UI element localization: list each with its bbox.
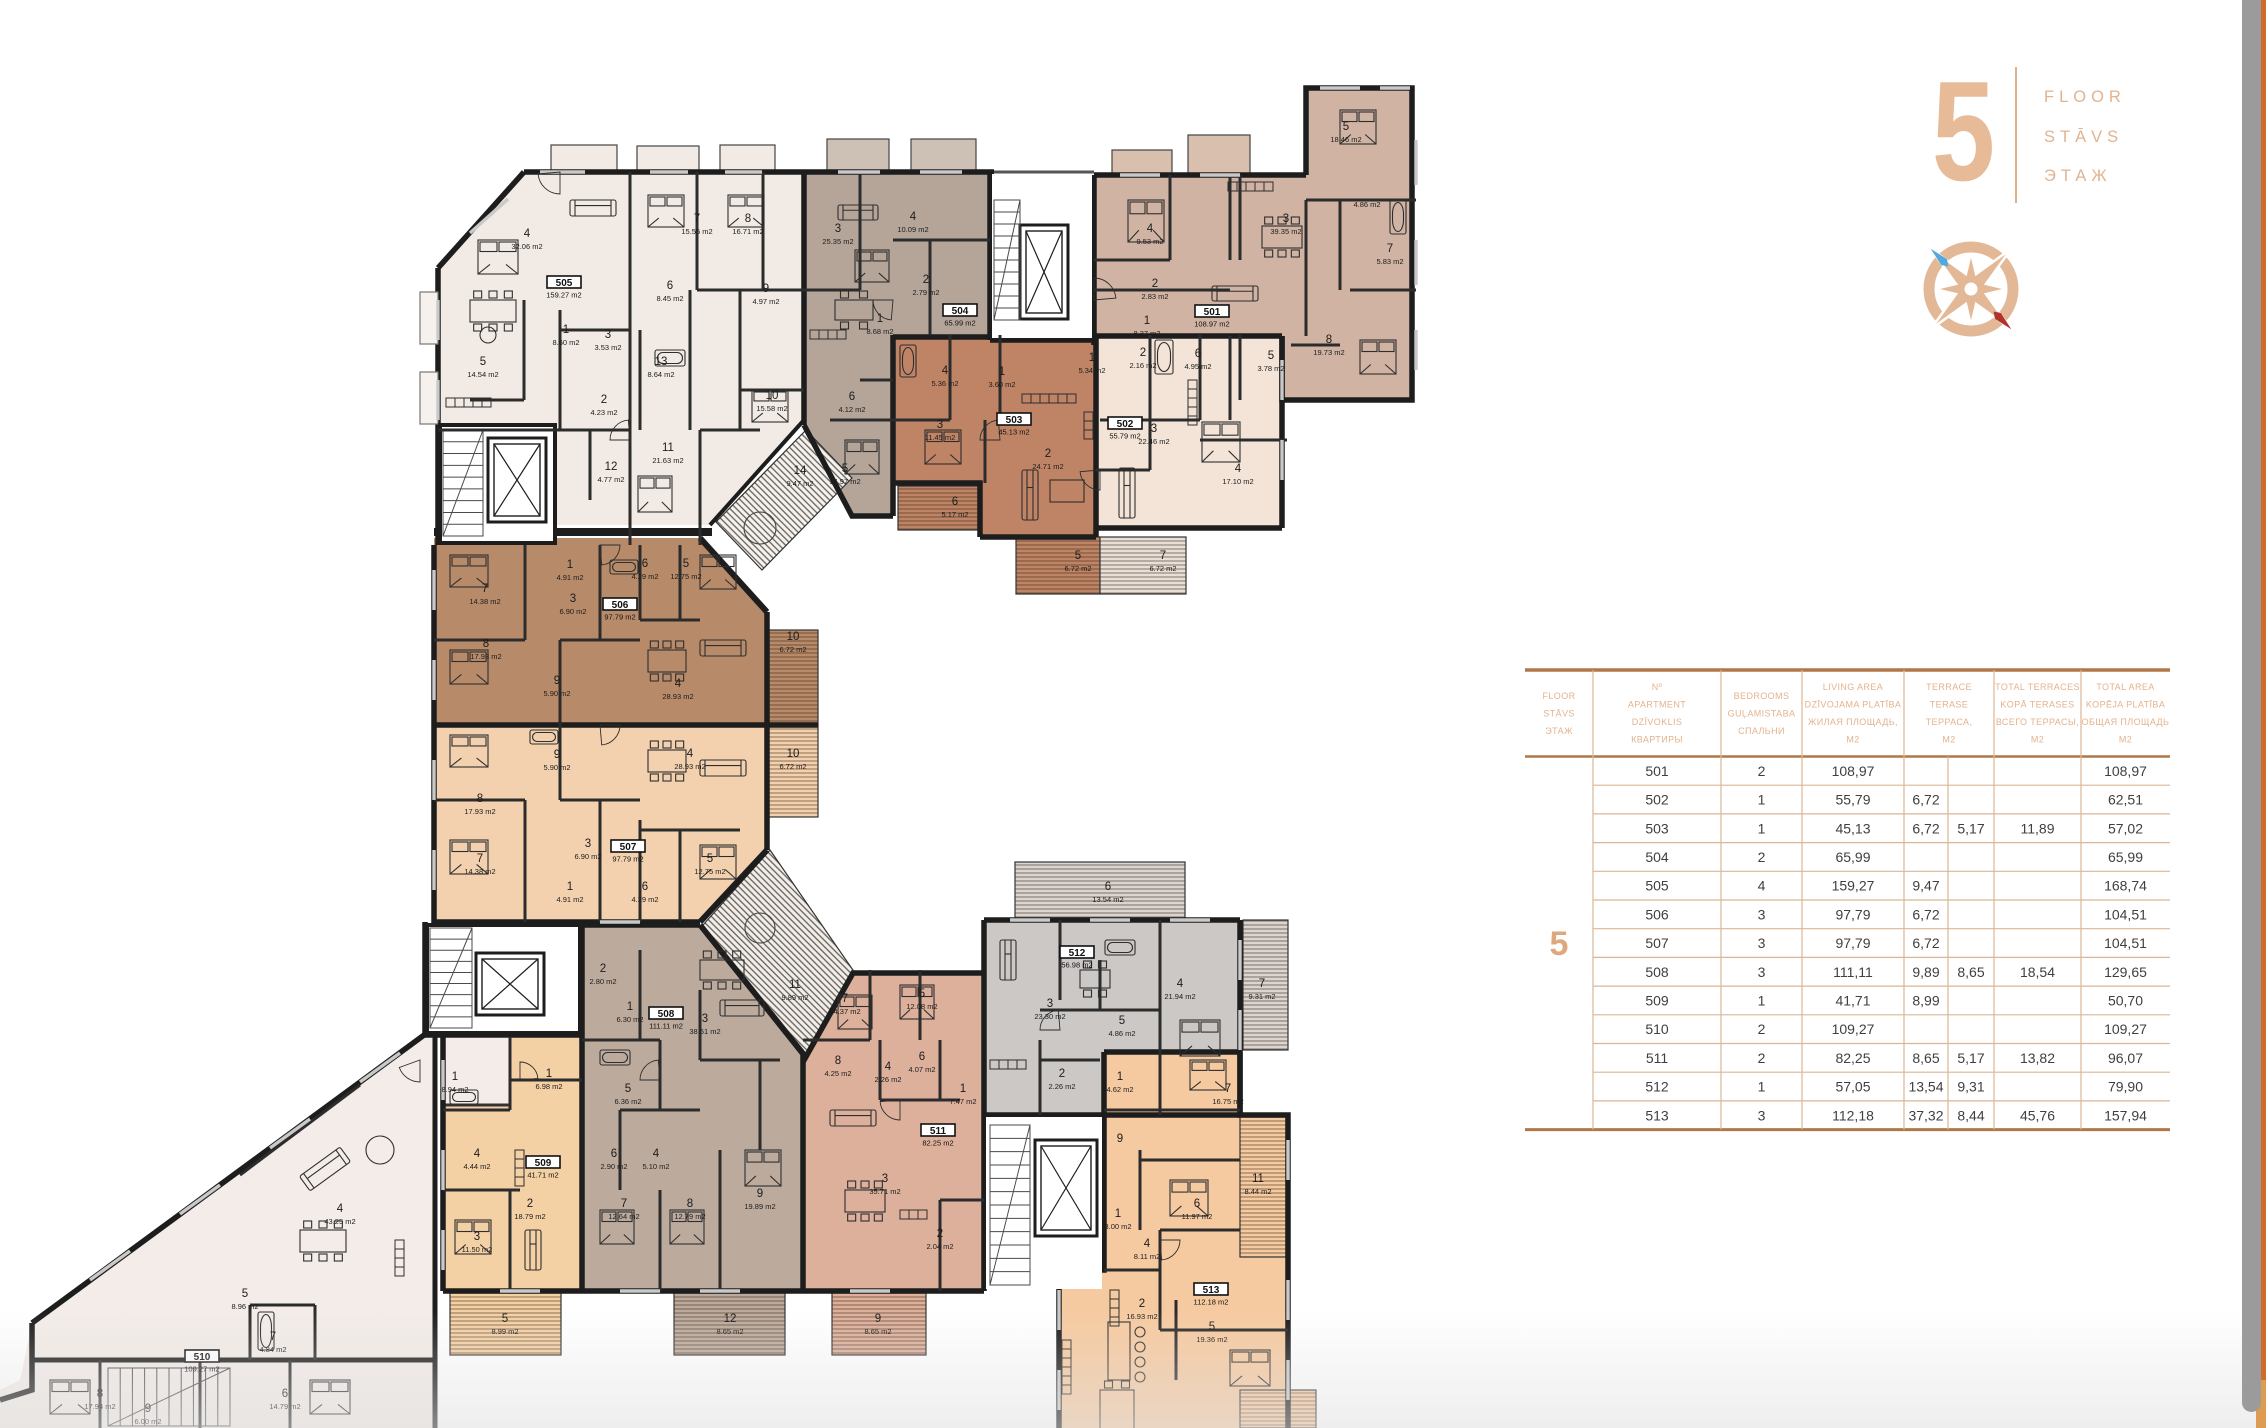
svg-text:TOTAL TERRACES: TOTAL TERRACES <box>1995 682 2080 692</box>
svg-text:6,72: 6,72 <box>1912 792 1939 808</box>
svg-text:509: 509 <box>1645 992 1669 1008</box>
svg-text:2: 2 <box>1758 1021 1766 1037</box>
svg-text:4: 4 <box>1758 878 1766 894</box>
svg-text:5: 5 <box>1550 925 1569 963</box>
svg-text:1: 1 <box>1758 992 1766 1008</box>
svg-text:79,90: 79,90 <box>2108 1079 2143 1095</box>
svg-text:ВСЕГО ТЕРРАСЫ,: ВСЕГО ТЕРРАСЫ, <box>1996 717 2079 727</box>
svg-text:DZĪVOKLIS: DZĪVOKLIS <box>1632 717 1683 727</box>
svg-text:13,82: 13,82 <box>2020 1050 2055 1066</box>
svg-text:82,25: 82,25 <box>1835 1050 1870 1066</box>
svg-text:6,72: 6,72 <box>1912 935 1939 951</box>
svg-text:109,27: 109,27 <box>1832 1021 1875 1037</box>
svg-text:BEDROOMS: BEDROOMS <box>1734 691 1790 701</box>
svg-text:LIVING AREA: LIVING AREA <box>1823 682 1883 692</box>
svg-text:6,72: 6,72 <box>1912 906 1939 922</box>
svg-text:ТЕРРАСА,: ТЕРРАСА, <box>1926 717 1973 727</box>
svg-text:512: 512 <box>1645 1079 1669 1095</box>
svg-text:45,13: 45,13 <box>1835 820 1870 836</box>
svg-text:129,65: 129,65 <box>2104 964 2147 980</box>
svg-text:506: 506 <box>1645 906 1669 922</box>
svg-text:M2: M2 <box>1942 735 1955 745</box>
svg-text:КВАРТИРЫ: КВАРТИРЫ <box>1631 735 1683 745</box>
svg-text:8,99: 8,99 <box>1912 992 1939 1008</box>
svg-text:508: 508 <box>1645 964 1669 980</box>
svg-text:96,07: 96,07 <box>2108 1050 2143 1066</box>
svg-text:11,89: 11,89 <box>2021 820 2055 836</box>
svg-text:168,74: 168,74 <box>2104 878 2147 894</box>
svg-text:APARTMENT: APARTMENT <box>1628 700 1686 710</box>
svg-text:57,05: 57,05 <box>1835 1079 1870 1095</box>
svg-text:510: 510 <box>1645 1021 1669 1037</box>
svg-text:13,54: 13,54 <box>1908 1079 1943 1095</box>
svg-text:5,17: 5,17 <box>1957 820 1984 836</box>
svg-text:45,76: 45,76 <box>2020 1107 2055 1123</box>
svg-text:1: 1 <box>1758 1079 1766 1095</box>
svg-text:M2: M2 <box>1846 735 1859 745</box>
svg-text:157,94: 157,94 <box>2104 1107 2147 1123</box>
svg-text:KOPĀ TERASES: KOPĀ TERASES <box>2000 700 2074 710</box>
svg-text:507: 507 <box>1645 935 1669 951</box>
svg-text:501: 501 <box>1645 763 1669 779</box>
svg-text:TERASE: TERASE <box>1930 700 1968 710</box>
svg-text:504: 504 <box>1645 849 1669 865</box>
svg-text:KOPĒJA PLATĪBA: KOPĒJA PLATĪBA <box>2086 700 2165 710</box>
svg-text:2: 2 <box>1758 849 1766 865</box>
svg-text:111,11: 111,11 <box>1833 964 1873 980</box>
svg-text:50,70: 50,70 <box>2108 992 2143 1008</box>
svg-text:9,89: 9,89 <box>1912 964 1939 980</box>
svg-text:GUĻAMISTABA: GUĻAMISTABA <box>1728 708 1796 718</box>
svg-text:3: 3 <box>1758 964 1766 980</box>
svg-text:5,17: 5,17 <box>1957 1050 1984 1066</box>
svg-text:DZĪVOJAMA PLATĪBA: DZĪVOJAMA PLATĪBA <box>1805 700 1902 710</box>
svg-text:СПАЛЬНИ: СПАЛЬНИ <box>1738 726 1785 736</box>
svg-text:104,51: 104,51 <box>2104 935 2147 951</box>
svg-text:M2: M2 <box>2031 735 2044 745</box>
svg-text:ЭТАЖ: ЭТАЖ <box>1545 726 1573 736</box>
svg-text:97,79: 97,79 <box>1835 935 1870 951</box>
svg-text:104,51: 104,51 <box>2104 906 2147 922</box>
svg-text:505: 505 <box>1645 878 1669 894</box>
svg-text:109,27: 109,27 <box>2104 1021 2147 1037</box>
svg-text:62,51: 62,51 <box>2108 792 2143 808</box>
svg-text:2: 2 <box>1758 1050 1766 1066</box>
svg-text:3: 3 <box>1758 935 1766 951</box>
svg-text:108,97: 108,97 <box>1832 763 1875 779</box>
svg-text:8,65: 8,65 <box>1957 964 1984 980</box>
svg-text:112,18: 112,18 <box>1832 1107 1874 1123</box>
svg-text:37,32: 37,32 <box>1908 1107 1943 1123</box>
svg-text:6,72: 6,72 <box>1912 820 1939 836</box>
svg-text:1: 1 <box>1758 792 1766 808</box>
svg-text:57,02: 57,02 <box>2108 820 2143 836</box>
svg-text:Nº: Nº <box>1652 682 1663 692</box>
svg-text:FLOOR: FLOOR <box>1542 691 1575 701</box>
svg-text:41,71: 41,71 <box>1835 992 1870 1008</box>
svg-text:55,79: 55,79 <box>1835 792 1870 808</box>
svg-text:9,47: 9,47 <box>1912 878 1939 894</box>
svg-text:503: 503 <box>1645 820 1669 836</box>
svg-text:511: 511 <box>1646 1050 1669 1066</box>
svg-text:STĀVS: STĀVS <box>1543 708 1575 718</box>
svg-text:18,54: 18,54 <box>2020 964 2055 980</box>
svg-text:TERRACE: TERRACE <box>1926 682 1972 692</box>
svg-text:97,79: 97,79 <box>1835 906 1870 922</box>
svg-text:ОБЩАЯ ПЛОЩАДЬ: ОБЩАЯ ПЛОЩАДЬ <box>2082 717 2170 727</box>
svg-text:8,65: 8,65 <box>1912 1050 1939 1066</box>
svg-text:65,99: 65,99 <box>2108 849 2143 865</box>
svg-text:9,31: 9,31 <box>1957 1079 1984 1095</box>
svg-text:3: 3 <box>1758 906 1766 922</box>
svg-text:1: 1 <box>1758 820 1766 836</box>
svg-text:3: 3 <box>1758 1107 1766 1123</box>
svg-text:TOTAL AREA: TOTAL AREA <box>2096 682 2154 692</box>
svg-text:ЖИЛАЯ ПЛОЩАДЬ,: ЖИЛАЯ ПЛОЩАДЬ, <box>1808 717 1898 727</box>
svg-text:65,99: 65,99 <box>1835 849 1870 865</box>
svg-text:M2: M2 <box>2119 735 2132 745</box>
svg-text:8,44: 8,44 <box>1957 1107 1984 1123</box>
svg-text:108,97: 108,97 <box>2104 763 2147 779</box>
svg-text:159,27: 159,27 <box>1832 878 1875 894</box>
svg-text:513: 513 <box>1645 1107 1669 1123</box>
svg-text:2: 2 <box>1758 763 1766 779</box>
svg-text:502: 502 <box>1645 792 1669 808</box>
